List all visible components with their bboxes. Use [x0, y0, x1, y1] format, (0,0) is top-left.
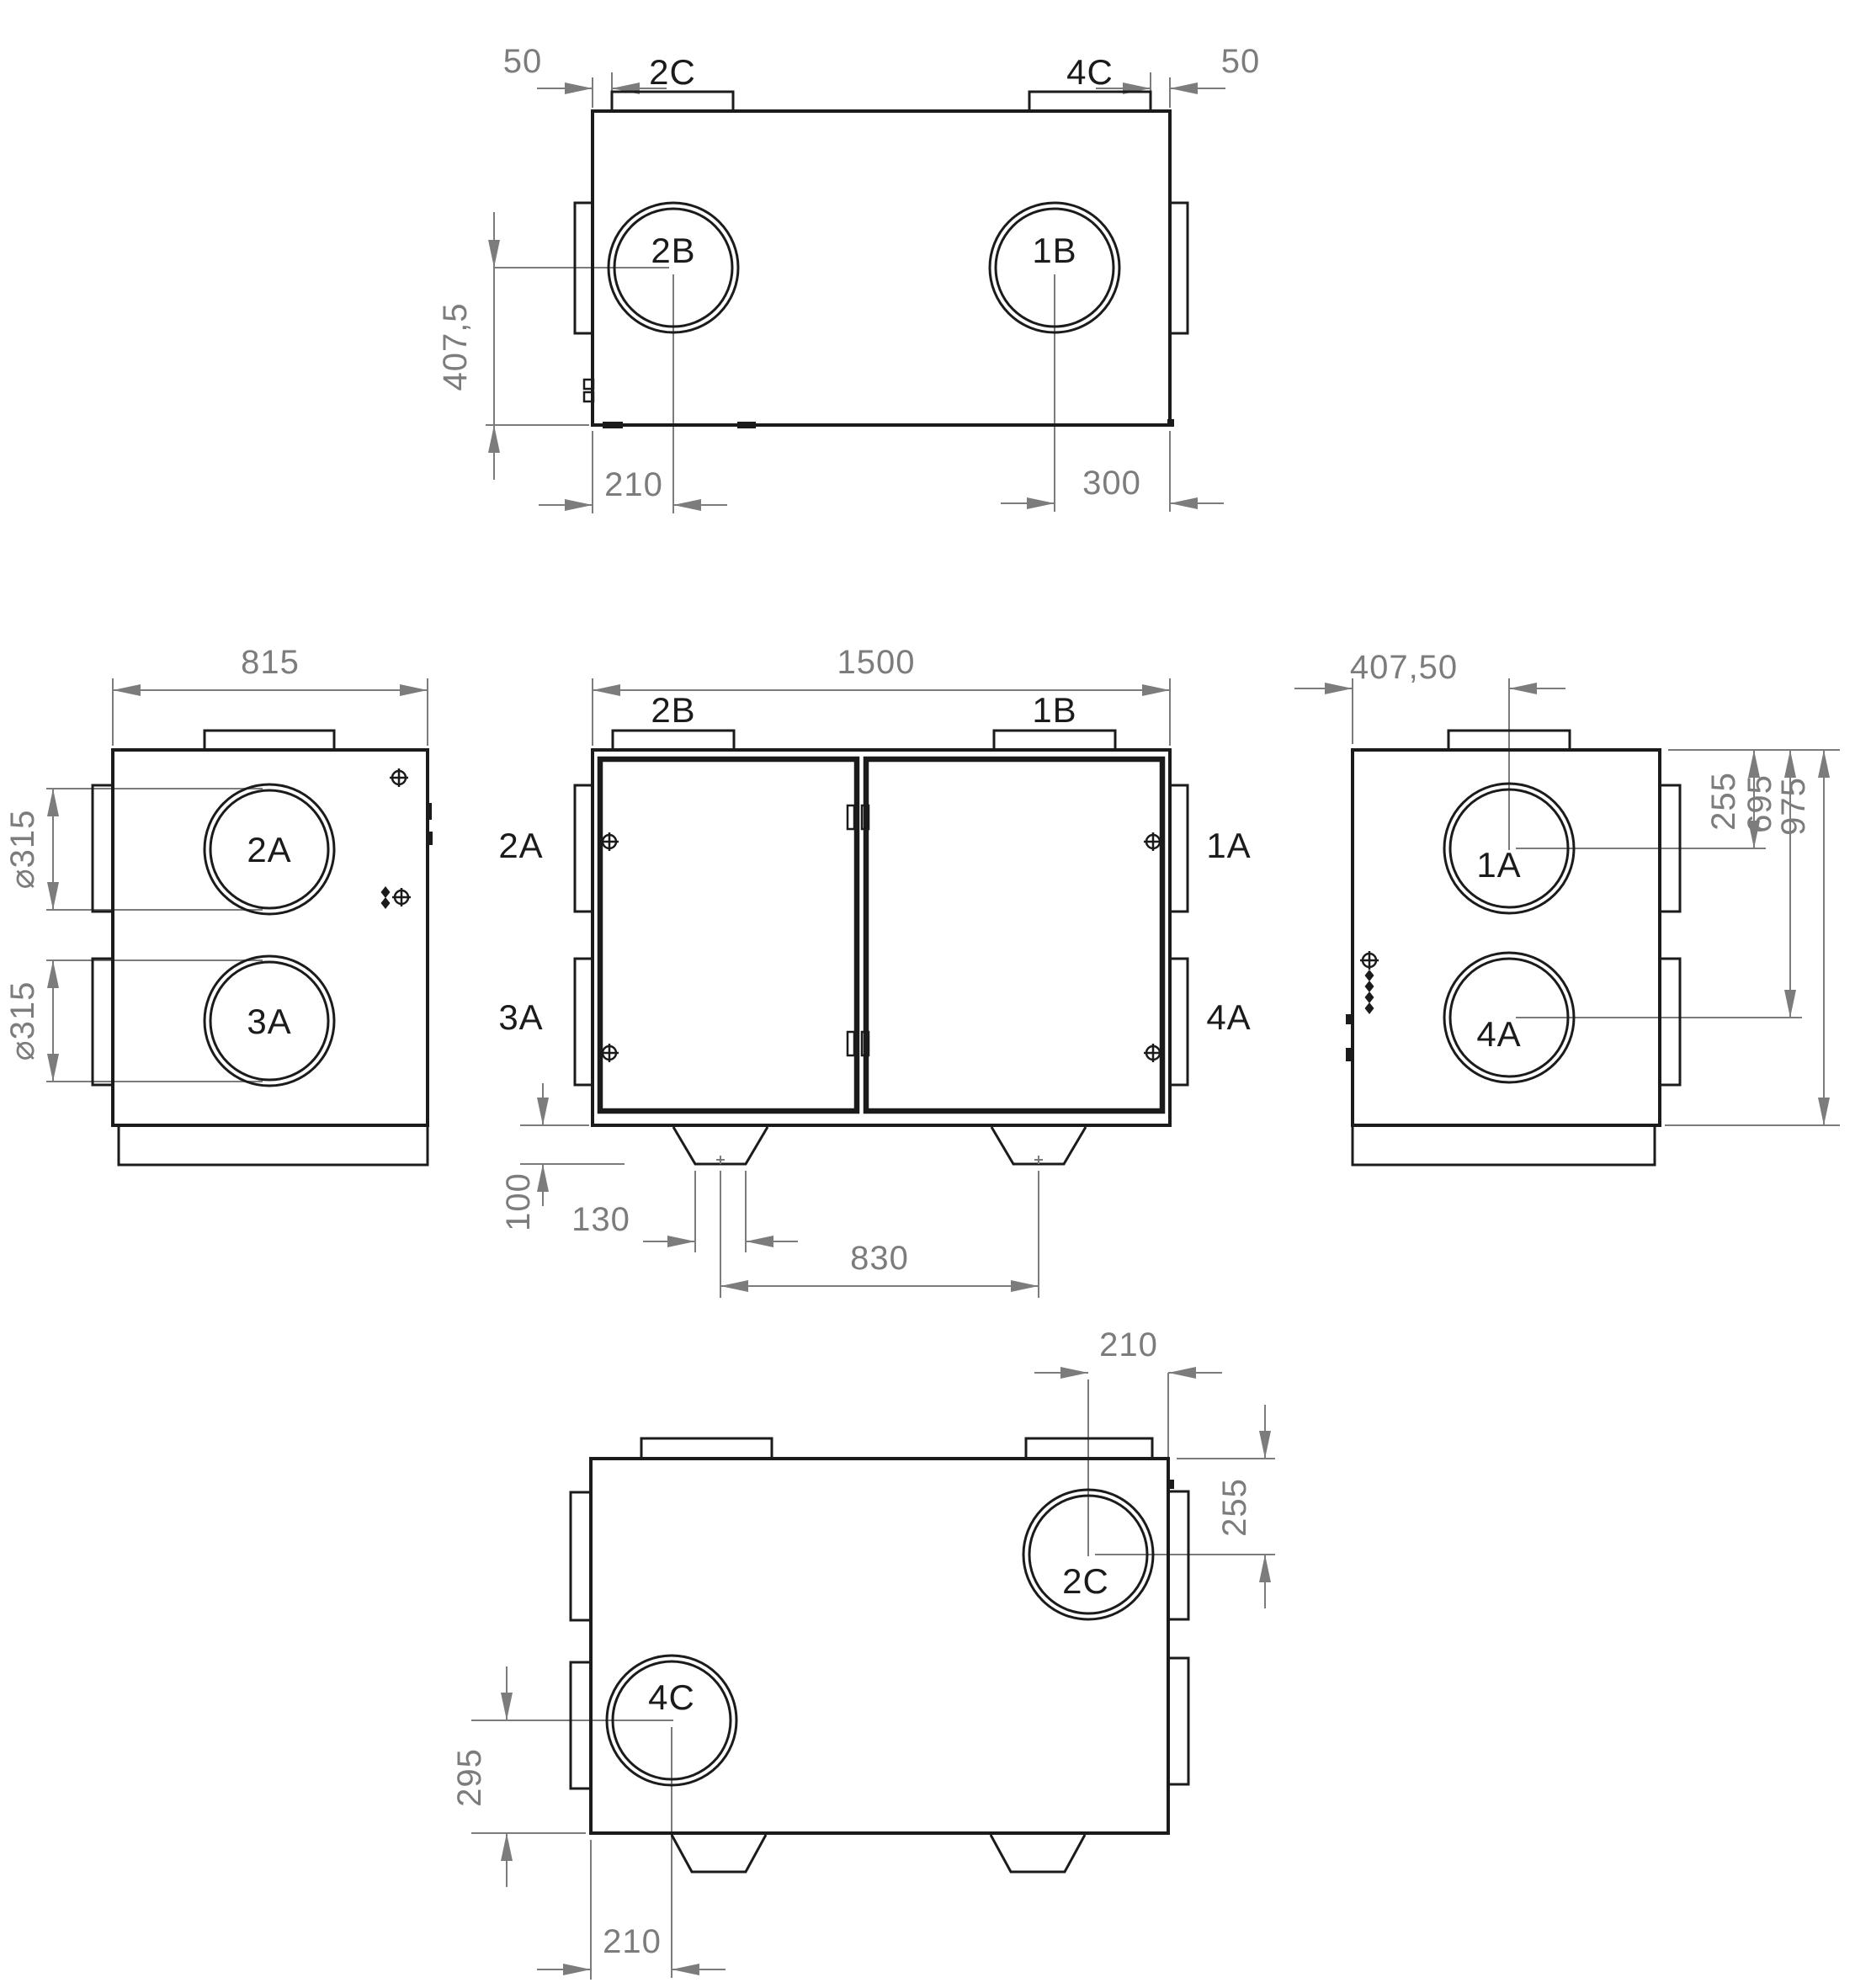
- duct-label: 1B: [1032, 690, 1076, 730]
- dim-label: 815: [241, 644, 300, 681]
- dim-label: 407,5: [437, 302, 474, 391]
- dim-label: 295: [451, 1748, 488, 1807]
- duct-collar-2b: [613, 731, 734, 750]
- hinge: [848, 1032, 854, 1055]
- dim-label: 210: [604, 466, 663, 503]
- foot: [991, 1835, 1085, 1872]
- hinge-mark: [427, 803, 432, 820]
- dim-label: 50: [1221, 43, 1261, 80]
- access-door-right: [866, 759, 1162, 1111]
- left-view-dimensions: 815 ⌀315 ⌀315: [4, 644, 428, 1082]
- hinge-mark: [427, 832, 433, 845]
- hinge: [848, 805, 854, 829]
- side-duct-stub: [1170, 959, 1188, 1085]
- dim-label: 100: [500, 1172, 537, 1231]
- dim-label: 50: [503, 43, 543, 80]
- hinge-mark: [1168, 1480, 1174, 1489]
- port-label: 1A: [1476, 845, 1521, 885]
- port-label: 1A: [1206, 826, 1251, 865]
- engineering-drawing: 50 50 407,5 210 300: [0, 0, 1871, 1988]
- duct-label: 2C: [649, 52, 696, 92]
- dim-label: 255: [1216, 1478, 1253, 1537]
- duct-collar-4c: [1029, 92, 1151, 111]
- diameter-dim-label: ⌀315: [4, 981, 41, 1061]
- diameter-dim-label: ⌀315: [4, 810, 41, 890]
- side-duct-stub: [571, 1492, 591, 1620]
- duct-collar: [641, 1438, 772, 1459]
- port-label: 1B: [1032, 231, 1076, 270]
- port-label: 2C: [1062, 1561, 1109, 1601]
- bottom-view: 210 255 295 210: [451, 1326, 1275, 1980]
- front-view: 1500 100 130 830: [498, 644, 1251, 1298]
- hinge-mark: [603, 422, 623, 428]
- left-side-view: 815 ⌀315 ⌀315 2A 3A: [4, 644, 433, 1165]
- dim-label: 407,50: [1350, 649, 1458, 686]
- side-duct-stub: [575, 785, 593, 912]
- top-view: 50 50 407,5 210 300: [437, 43, 1260, 513]
- port-label: 2B: [651, 231, 695, 270]
- port-label: 4C: [648, 1677, 695, 1717]
- dim-label: 300: [1082, 465, 1141, 502]
- right-view-dimensions: 407,50 255 695 975: [1294, 649, 1840, 1125]
- port-label: 3A: [247, 1002, 291, 1041]
- dim-label: 130: [571, 1201, 630, 1238]
- side-duct-stub: [1170, 203, 1188, 333]
- top-view-dimensions: 50 50 407,5 210 300: [437, 43, 1260, 513]
- port-label: 4A: [1206, 997, 1251, 1037]
- dim-label: 255: [1705, 772, 1742, 831]
- unit-body-bottom: [591, 1459, 1168, 1833]
- dim-label: 210: [603, 1923, 662, 1960]
- dim-label: 1500: [837, 644, 916, 681]
- duct-label: 4C: [1066, 52, 1114, 92]
- drawing-canvas: 50 50 407,5 210 300: [0, 0, 1871, 1988]
- unit-body-right: [1353, 750, 1660, 1125]
- bottom-view-dimensions: 210 255 295 210: [451, 1326, 1275, 1980]
- hinge-mark: [1346, 1048, 1353, 1061]
- duct-label: 2B: [651, 690, 695, 730]
- access-door-left: [600, 759, 857, 1111]
- port-label: 4A: [1476, 1014, 1521, 1054]
- dim-label: 210: [1099, 1326, 1158, 1363]
- base-plinth: [119, 1125, 428, 1165]
- port-label: 2A: [247, 830, 291, 869]
- port-label: 2A: [498, 826, 543, 865]
- side-duct-stub: [1170, 785, 1188, 912]
- duct-collar-2c: [612, 92, 733, 111]
- side-duct-stub: [1660, 959, 1680, 1085]
- side-duct-stub: [1168, 1658, 1188, 1784]
- base-plinth: [1353, 1125, 1655, 1165]
- hinge-mark: [1167, 419, 1174, 427]
- port-label: 3A: [498, 997, 543, 1037]
- side-duct-stub: [575, 959, 593, 1085]
- side-duct-stub: [93, 959, 113, 1085]
- side-duct-stub: [571, 1662, 591, 1789]
- hinge-mark: [737, 422, 756, 428]
- dim-label: 695: [1741, 774, 1778, 833]
- unit-body-left: [113, 750, 428, 1125]
- dim-label: 975: [1775, 777, 1812, 836]
- top-duct-collar: [205, 731, 334, 750]
- right-side-view: 407,50 255 695 975 1A: [1294, 649, 1840, 1165]
- side-duct-stub: [93, 785, 113, 912]
- hinge-mark: [1346, 1014, 1353, 1024]
- duct-collar-1b: [994, 731, 1115, 750]
- foot: [672, 1835, 766, 1872]
- unit-body-front: [593, 750, 1170, 1125]
- dim-label: 830: [850, 1240, 909, 1277]
